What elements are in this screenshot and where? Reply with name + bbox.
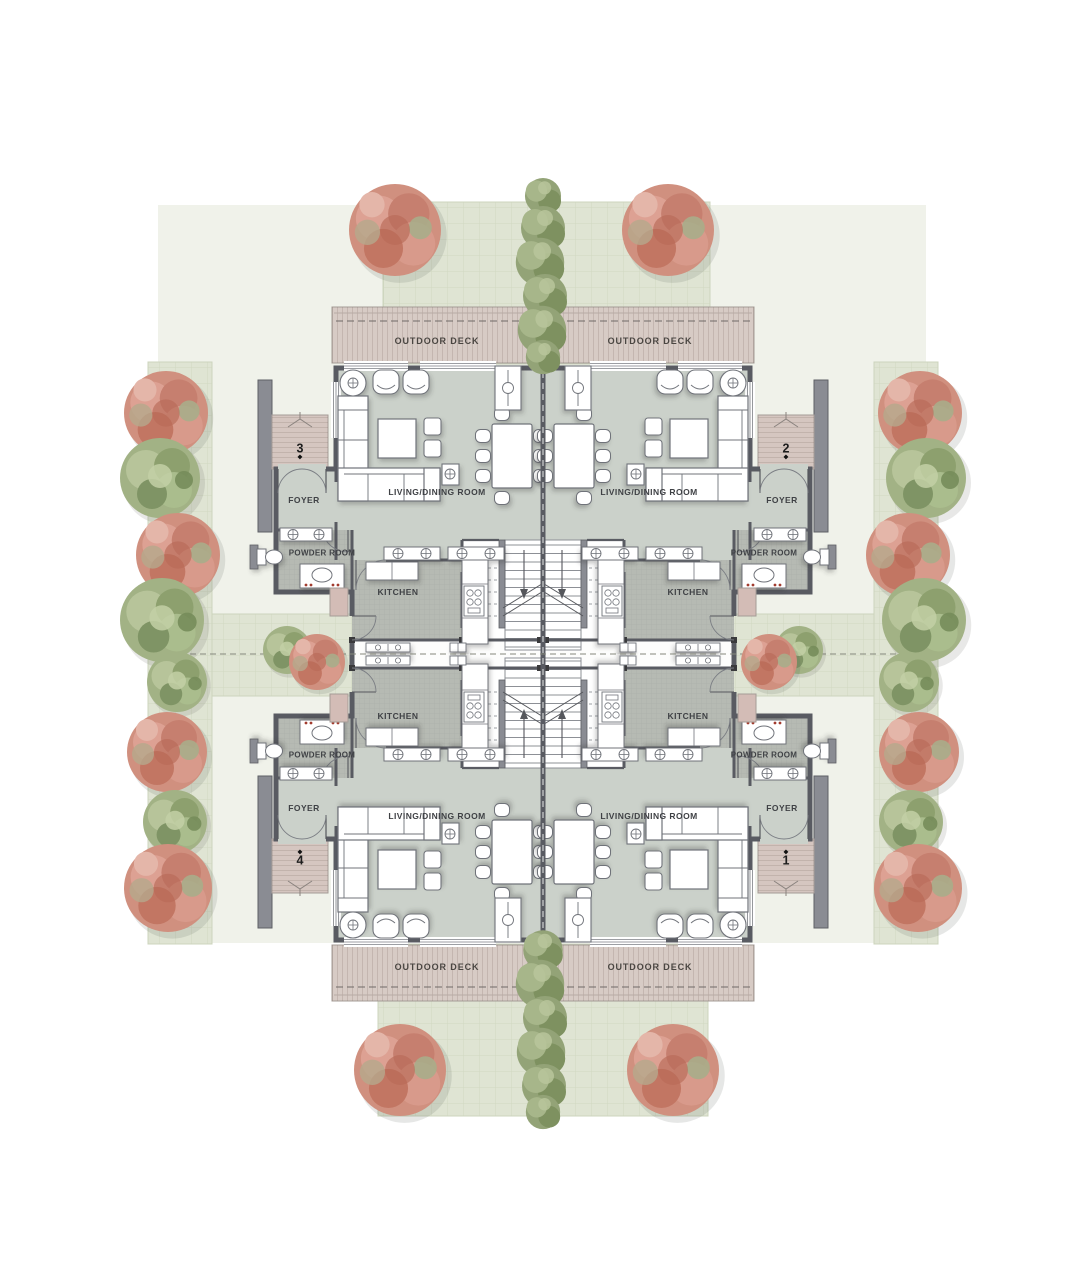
deck-label-top-right: OUTDOOR DECK <box>608 336 693 346</box>
unit-number-2: 2◆ <box>783 444 790 461</box>
unit-number-1: ◆1 <box>783 850 790 867</box>
deck-label-bottom-right: OUTDOOR DECK <box>608 962 693 972</box>
room-label-powder-tr: POWDER ROOM <box>731 549 797 558</box>
room-label-foyer-bl: FOYER <box>288 803 320 813</box>
unit-number-3: 3◆ <box>297 444 304 461</box>
room-label-kitchen-bl: KITCHEN <box>378 711 419 721</box>
unit-marker-icon: ◆ <box>298 455 303 461</box>
floor-plan-drawing <box>0 0 1080 1267</box>
room-label-living-br: LIVING/DINING ROOM <box>600 811 697 821</box>
room-label-powder-br: POWDER ROOM <box>731 751 797 760</box>
room-label-foyer-br: FOYER <box>766 803 798 813</box>
unit-number-4: ◆4 <box>297 850 304 867</box>
room-label-powder-bl: POWDER ROOM <box>289 751 355 760</box>
room-label-kitchen-tr: KITCHEN <box>668 587 709 597</box>
unit-marker-icon: ◆ <box>784 455 789 461</box>
room-label-living-tl: LIVING/DINING ROOM <box>388 487 485 497</box>
room-label-living-bl: LIVING/DINING ROOM <box>388 811 485 821</box>
deck-label-bottom-left: OUTDOOR DECK <box>395 962 480 972</box>
room-label-foyer-tr: FOYER <box>766 495 798 505</box>
deck-label-top-left: OUTDOOR DECK <box>395 336 480 346</box>
room-label-kitchen-tl: KITCHEN <box>378 587 419 597</box>
room-label-powder-tl: POWDER ROOM <box>289 549 355 558</box>
floor-plan-canvas: OUTDOOR DECK OUTDOOR DECK OUTDOOR DECK O… <box>0 0 1080 1267</box>
room-label-foyer-tl: FOYER <box>288 495 320 505</box>
room-label-kitchen-br: KITCHEN <box>668 711 709 721</box>
room-label-living-tr: LIVING/DINING ROOM <box>600 487 697 497</box>
